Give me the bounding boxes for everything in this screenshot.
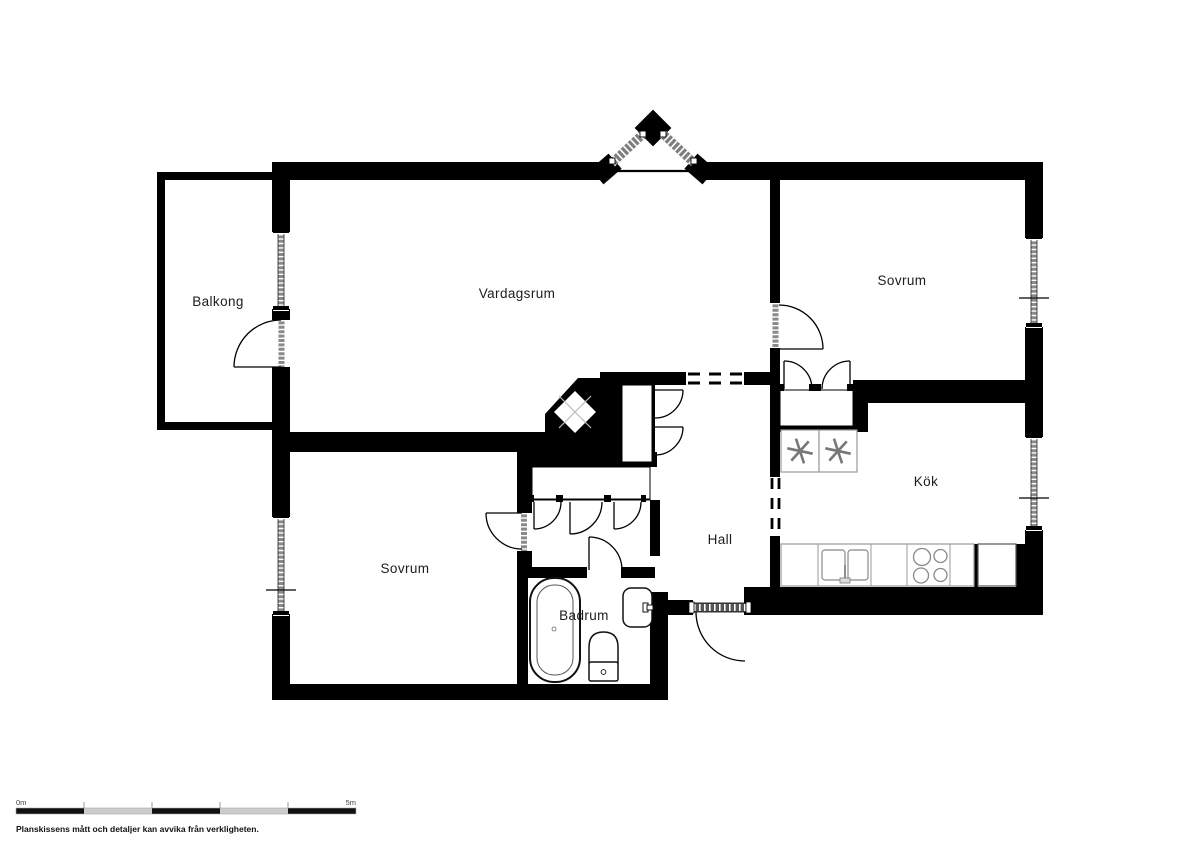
room-label-vardagsrum: Vardagsrum xyxy=(479,286,556,301)
fridge-freezer-icons xyxy=(781,430,857,472)
wardrobe-strip xyxy=(529,467,650,502)
bay-window-right-glass xyxy=(660,131,697,164)
floorplan-drawing: Balkong Vardagsrum Sovrum Kök Hall Sovru… xyxy=(0,0,1200,848)
bathroom-fixtures xyxy=(530,578,653,682)
room-label-sovrum-1: Sovrum xyxy=(878,273,927,288)
bathroom-sink-icon xyxy=(623,588,653,627)
bedroom2-door xyxy=(486,509,532,555)
passage-vardagsrum-hall xyxy=(686,370,744,386)
hall-closet-doors xyxy=(655,390,683,455)
kitchen-window xyxy=(1019,434,1049,531)
counter-cabinet xyxy=(978,544,1016,586)
scale-bar: 0m 5m xyxy=(16,798,356,814)
floorplan-page: Balkong Vardagsrum Sovrum Kök Hall Sovru… xyxy=(0,0,1200,848)
kitchen-closet xyxy=(778,384,853,426)
room-label-balkong: Balkong xyxy=(192,294,244,309)
passage-hall-kok xyxy=(768,477,782,536)
kitchen-counter xyxy=(781,544,1016,586)
room-label-kok: Kök xyxy=(914,474,938,489)
scale-end-label: 5m xyxy=(346,798,356,807)
entrance-door xyxy=(689,602,751,661)
disclaimer-text: Planskissens mått och detaljer kan avvik… xyxy=(16,824,259,834)
scale-start-label: 0m xyxy=(16,798,26,807)
chimney-shaft-symbol xyxy=(554,391,596,433)
bay-window-left-glass xyxy=(609,131,646,164)
bedroom2-window xyxy=(266,514,296,616)
room-label-hall: Hall xyxy=(708,532,733,547)
toilet-icon xyxy=(589,632,618,681)
bathroom-door xyxy=(583,537,625,579)
room-label-sovrum-2: Sovrum xyxy=(381,561,430,576)
kitchen-sink-icon xyxy=(822,550,868,583)
bedroom1-window xyxy=(1019,235,1049,328)
wardrobe-doors xyxy=(534,502,641,534)
bay-window xyxy=(590,110,715,185)
room-label-badrum: Badrum xyxy=(559,608,609,623)
balcony-door xyxy=(234,316,288,367)
balcony-window xyxy=(273,229,289,311)
open-passages xyxy=(686,370,782,536)
bedroom1-door xyxy=(770,299,823,352)
bathtub-icon xyxy=(530,578,580,682)
